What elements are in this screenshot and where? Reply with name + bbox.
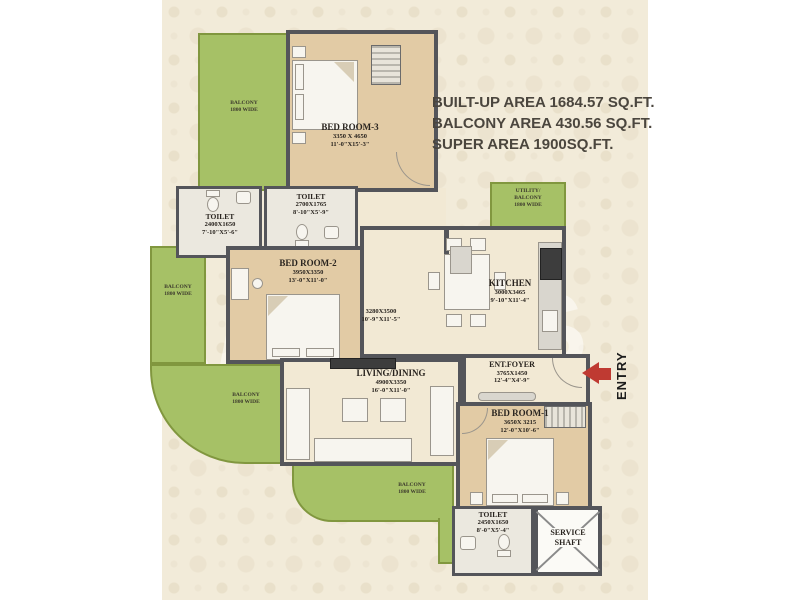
bedroom2-dresser bbox=[231, 268, 249, 300]
living-table bbox=[380, 398, 406, 422]
kitchen-sink bbox=[542, 310, 558, 332]
hall-dimension-label: 3280X3500 10'-9"X11'-5" bbox=[342, 308, 420, 324]
toilet-b-basin-icon bbox=[324, 226, 339, 239]
toilet-c-basin-icon bbox=[460, 536, 476, 550]
foyer-label: ENT.FOYER 3765X1450 12'-4"X4'-9" bbox=[470, 360, 554, 385]
toilet-c-label: TOILET 2450X1650 8'-0"X5'-4" bbox=[458, 510, 528, 535]
balcony-left-lower-label: BALCONY 1800 WIDE bbox=[212, 392, 280, 406]
bedroom1-bed-fold bbox=[488, 440, 508, 460]
balcony-left-mid bbox=[150, 246, 206, 364]
living-label: LIVING/DINING 4900X3350 16'-0"X11'-0" bbox=[336, 368, 446, 394]
entry-arrow-shaft bbox=[599, 368, 611, 380]
bedroom3-label: BED ROOM-3 3350 X 4650 11'-0"X15'-3" bbox=[300, 122, 400, 148]
balcony-area-text: BALCONY AREA 430.56 SQ.FT. bbox=[432, 113, 662, 134]
living-sofa-left bbox=[286, 388, 310, 460]
bedroom3-bed-fold bbox=[334, 62, 354, 82]
bedroom2-bed-fold bbox=[268, 296, 288, 316]
builtup-area-text: BUILT-UP AREA 1684.57 SQ.FT. bbox=[432, 92, 662, 113]
dining-chair bbox=[470, 314, 486, 327]
balcony-left-mid-label: BALCONY 1800 WIDE bbox=[150, 284, 206, 298]
bedroom1-label: BED ROOM-1 3650X 3215 12'-0"X10'-6" bbox=[464, 408, 576, 434]
balcony-top-left-label: BALCONY 1800 WIDE bbox=[206, 100, 282, 114]
toilet-a-label: TOILET 2400X1650 7'-10"X5'-6" bbox=[182, 212, 258, 237]
living-table bbox=[342, 398, 368, 422]
entry-label: ENTRY bbox=[614, 351, 629, 400]
toilet-b-label: TOILET 2700X1765 8'-10"X5'-9" bbox=[270, 192, 352, 217]
bedroom2-label: BED ROOM-2 3950X3350 13'-0"X11'-0" bbox=[252, 258, 364, 284]
toilet-a-wc-tank bbox=[206, 190, 220, 197]
bedroom1-pillow bbox=[492, 494, 518, 503]
entry-arrow-icon bbox=[582, 362, 599, 384]
kitchen-stove bbox=[540, 248, 562, 280]
bedroom3-wardrobe bbox=[371, 45, 401, 85]
area-summary: BUILT-UP AREA 1684.57 SQ.FT. BALCONY ARE… bbox=[432, 92, 662, 155]
service-shaft-label: SERVICE SHAFT bbox=[538, 528, 598, 547]
toilet-c-wc-icon bbox=[498, 534, 510, 550]
bedroom1-pillow bbox=[522, 494, 548, 503]
toilet-b-wc-icon bbox=[296, 224, 308, 240]
bedroom2-pillow bbox=[272, 348, 300, 357]
dining-chair bbox=[428, 272, 440, 290]
super-area-text: SUPER AREA 1900SQ.FT. bbox=[432, 134, 662, 155]
toilet-a-wc-icon bbox=[207, 197, 219, 212]
foyer-bench bbox=[478, 392, 536, 401]
toilet-c-wc-tank bbox=[497, 550, 511, 557]
bedroom3-pillow bbox=[295, 94, 304, 120]
utility-balcony-label: UTILITY/ BALCONY 1800 WIDE bbox=[492, 188, 564, 209]
living-sofa-right bbox=[430, 386, 454, 456]
bedroom1-side-table bbox=[470, 492, 483, 505]
toilet-a-basin-icon bbox=[236, 191, 251, 204]
kitchen-fridge bbox=[450, 246, 472, 274]
floor-plan-page: MORES BALCONY 1800 WIDE BALCONY 1800 WID… bbox=[0, 0, 800, 600]
kitchen-label: KITCHEN 3000X3465 9'-10"X11'-4" bbox=[466, 278, 554, 304]
dining-chair bbox=[470, 238, 486, 251]
balcony-bottom-label: BALCONY 1800 WIDE bbox=[376, 482, 448, 496]
bedroom2-pillow bbox=[306, 348, 334, 357]
living-sofa-bottom bbox=[314, 438, 412, 462]
bedroom3-side-table bbox=[292, 46, 306, 58]
bedroom3-pillow bbox=[295, 64, 304, 90]
dining-chair bbox=[446, 314, 462, 327]
bedroom1-side-table bbox=[556, 492, 569, 505]
